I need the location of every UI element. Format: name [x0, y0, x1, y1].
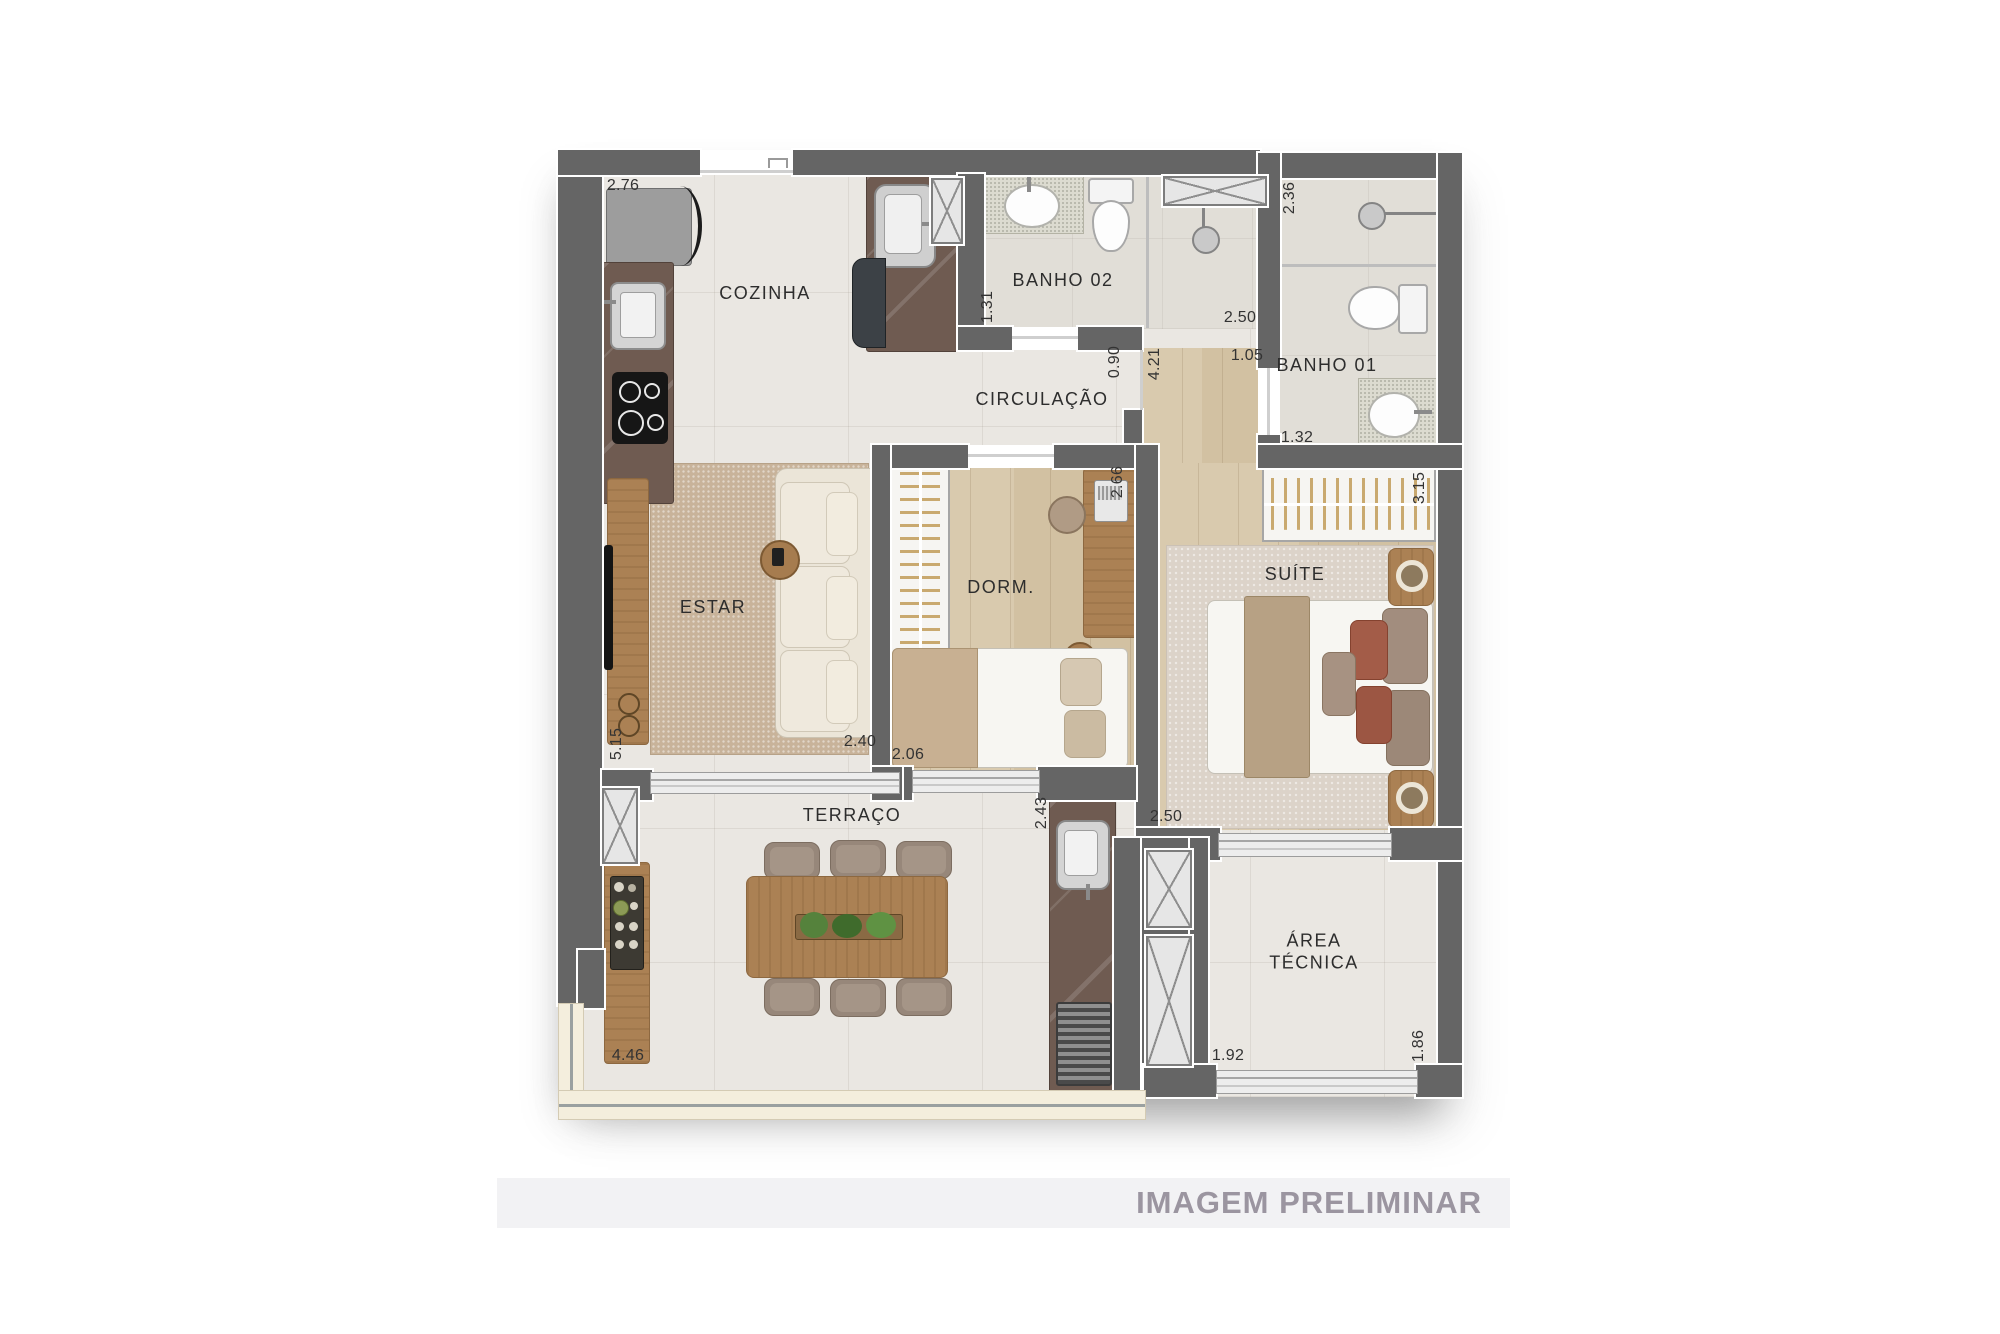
banho02-door-threshold — [1012, 336, 1078, 339]
dim-circulacao-width: 0.90 — [1107, 346, 1123, 378]
wall-top-left — [558, 150, 700, 175]
dining-chair-3 — [896, 841, 952, 879]
nightstand-lamp-top — [1396, 560, 1428, 592]
dim-estar-depth: 5.15 — [609, 728, 625, 760]
banho01-shower-divider — [1280, 264, 1438, 267]
wall-dorm-bottom-a — [904, 767, 912, 800]
banho01-shower-arm-icon — [1384, 212, 1436, 215]
wall-terrace-stub — [578, 950, 604, 1008]
banho02-shower-divider — [1146, 176, 1149, 328]
room-label-circulacao: CIRCULAÇÃO — [975, 389, 1108, 411]
wall-service-right — [1114, 838, 1144, 1095]
cooktop-burner-2 — [644, 383, 660, 399]
terrace-railing-bottom — [558, 1090, 1146, 1120]
suite-pillow-tan-2 — [1386, 690, 1430, 766]
duct-shaft-mid-1 — [1146, 850, 1192, 928]
dim-dorm-width: 2.06 — [892, 747, 924, 763]
suite-pillow-rust-2 — [1356, 686, 1392, 744]
sliding-door-estar-terraco — [650, 772, 900, 794]
dorm-door-threshold — [968, 454, 1054, 457]
dim-banho02-depth: 1.31 — [980, 291, 996, 323]
wall-dorm-suite — [1136, 445, 1158, 852]
dim-area-tecnica-depth: 1.86 — [1411, 1030, 1427, 1062]
dim-hall-width: 1.05 — [1231, 348, 1263, 364]
remote-icon — [772, 548, 784, 566]
room-label-estar: ESTAR — [680, 597, 746, 619]
sofa-back-pillow-1 — [826, 492, 858, 556]
planter-plant-3 — [866, 912, 896, 938]
tv-icon — [604, 545, 613, 670]
sofa-back-pillow-3 — [826, 660, 858, 724]
wall-areatec-left — [1190, 838, 1208, 1095]
entrance-door-mark — [768, 158, 788, 168]
grill-grate — [1056, 1002, 1112, 1086]
cooktop-burner-3 — [618, 410, 644, 436]
bbq-knob-5 — [615, 922, 624, 931]
dorm-pillow-1 — [1060, 658, 1102, 706]
entrance-threshold — [700, 170, 793, 173]
railing-glass — [559, 1104, 1145, 1107]
planter-plant-2 — [832, 914, 862, 938]
dim-suite-closet: 3.15 — [1412, 472, 1428, 504]
banho02-shower-head-icon — [1192, 226, 1220, 254]
suite-bed-runner — [1244, 596, 1310, 778]
dining-chair-1 — [764, 842, 820, 880]
suite-window — [1218, 833, 1392, 857]
banho01-toilet-tank — [1398, 284, 1428, 334]
suite-pillow-tan-1 — [1382, 608, 1428, 684]
laundry-sink-basin — [884, 194, 922, 254]
suite-closet — [1262, 466, 1436, 542]
bbq-knob-2 — [628, 884, 636, 892]
dim-estar-width: 2.40 — [844, 734, 876, 750]
wall-left — [558, 150, 602, 1005]
dim-suite-width: 2.50 — [1150, 809, 1182, 825]
room-label-cozinha: COZINHA — [719, 283, 811, 305]
duct-shaft-terrace — [602, 788, 638, 864]
watermark-text: IMAGEM PRELIMINAR — [1136, 1185, 1510, 1221]
dim-terraco-width: 4.46 — [612, 1048, 644, 1064]
duct-shaft-banho02-top — [1163, 176, 1267, 206]
room-label-dorm: DORM. — [967, 577, 1035, 599]
bbq-knob-7 — [615, 940, 624, 949]
dining-chair-2 — [830, 840, 886, 878]
wall-right — [1438, 153, 1462, 1097]
dining-chair-6 — [896, 978, 952, 1016]
banho01-toilet-bowl — [1348, 286, 1400, 330]
suite-pillow-gray — [1322, 652, 1356, 716]
cooktop-burner-1 — [619, 381, 641, 403]
speaker-1 — [618, 693, 640, 715]
banho01-faucet-icon — [1414, 410, 1432, 414]
cooktop — [612, 372, 668, 444]
cooktop-burner-4 — [647, 414, 664, 431]
room-label-area-tecnica: ÁREA TÉCNICA — [1249, 930, 1379, 973]
wall-banho01-bottom — [1258, 445, 1462, 468]
dim-banho02-shower: 2.50 — [1224, 310, 1256, 326]
dim-banho01-width: 1.32 — [1281, 430, 1313, 446]
banho01-door-threshold — [1267, 368, 1270, 435]
planter-plant-1 — [800, 912, 828, 938]
washer — [852, 258, 886, 348]
room-label-banho02: BANHO 02 — [1012, 270, 1113, 292]
wall-top-mid — [793, 150, 1260, 175]
bbq-knob-4 — [630, 902, 638, 910]
room-label-banho01: BANHO 01 — [1276, 355, 1377, 377]
nightstand-lamp-bottom — [1396, 782, 1428, 814]
duct-shaft-mid-2 — [1146, 936, 1192, 1066]
room-label-suite: SUÍTE — [1265, 564, 1326, 586]
terrace-faucet-icon — [1086, 884, 1090, 900]
kitchen-sink-basin — [620, 292, 656, 338]
floor-plan-canvas: COZINHA BANHO 02 BANHO 01 CIRCULAÇÃO EST… — [0, 0, 2000, 1334]
area-tecnica-window — [1216, 1070, 1418, 1094]
dim-dorm-depth: 2.66 — [1110, 466, 1126, 498]
wall-suite-bottom-b — [1390, 828, 1462, 860]
dining-chair-5 — [830, 979, 886, 1017]
wall-dorm-bottom-b — [1038, 767, 1136, 800]
bbq-knob-3 — [613, 900, 629, 916]
dining-chair-4 — [764, 978, 820, 1016]
sofa-back-pillow-2 — [826, 576, 858, 640]
bbq-knob-6 — [629, 922, 638, 931]
banho02-sink — [1004, 184, 1060, 228]
dim-hall-length: 4.21 — [1147, 348, 1163, 380]
wall-banho02-bottom-a — [958, 327, 1012, 350]
banho01-sink — [1368, 392, 1420, 438]
dim-servico-depth: 2.43 — [1034, 797, 1050, 829]
banho02-faucet-icon — [1027, 174, 1031, 192]
terrace-sink-basin — [1064, 830, 1098, 876]
bbq-knob-8 — [629, 940, 638, 949]
dorm-pillow-2 — [1064, 710, 1106, 758]
wall-top-right — [1260, 153, 1462, 178]
dorm-window — [912, 770, 1040, 793]
hall-door-threshold — [1140, 350, 1143, 410]
dim-banho01-shower: 2.36 — [1282, 182, 1298, 214]
wall-areatec-bottom-b — [1416, 1065, 1462, 1097]
dim-area-tecnica-width: 1.92 — [1212, 1048, 1244, 1064]
desk-chair — [1048, 496, 1086, 534]
dim-cozinha-width: 2.76 — [607, 178, 639, 194]
bbq-knob-1 — [614, 882, 624, 892]
room-label-terraco: TERRAÇO — [803, 805, 902, 827]
wall-hall-stub — [1124, 410, 1142, 445]
wall-areatec-bottom-a — [1144, 1065, 1216, 1097]
watermark-band: IMAGEM PRELIMINAR — [497, 1178, 1510, 1228]
wall-dorm-top-b — [1054, 445, 1142, 468]
duct-shaft-kitchen — [931, 178, 963, 244]
banho01-shower-head-icon — [1358, 202, 1386, 230]
